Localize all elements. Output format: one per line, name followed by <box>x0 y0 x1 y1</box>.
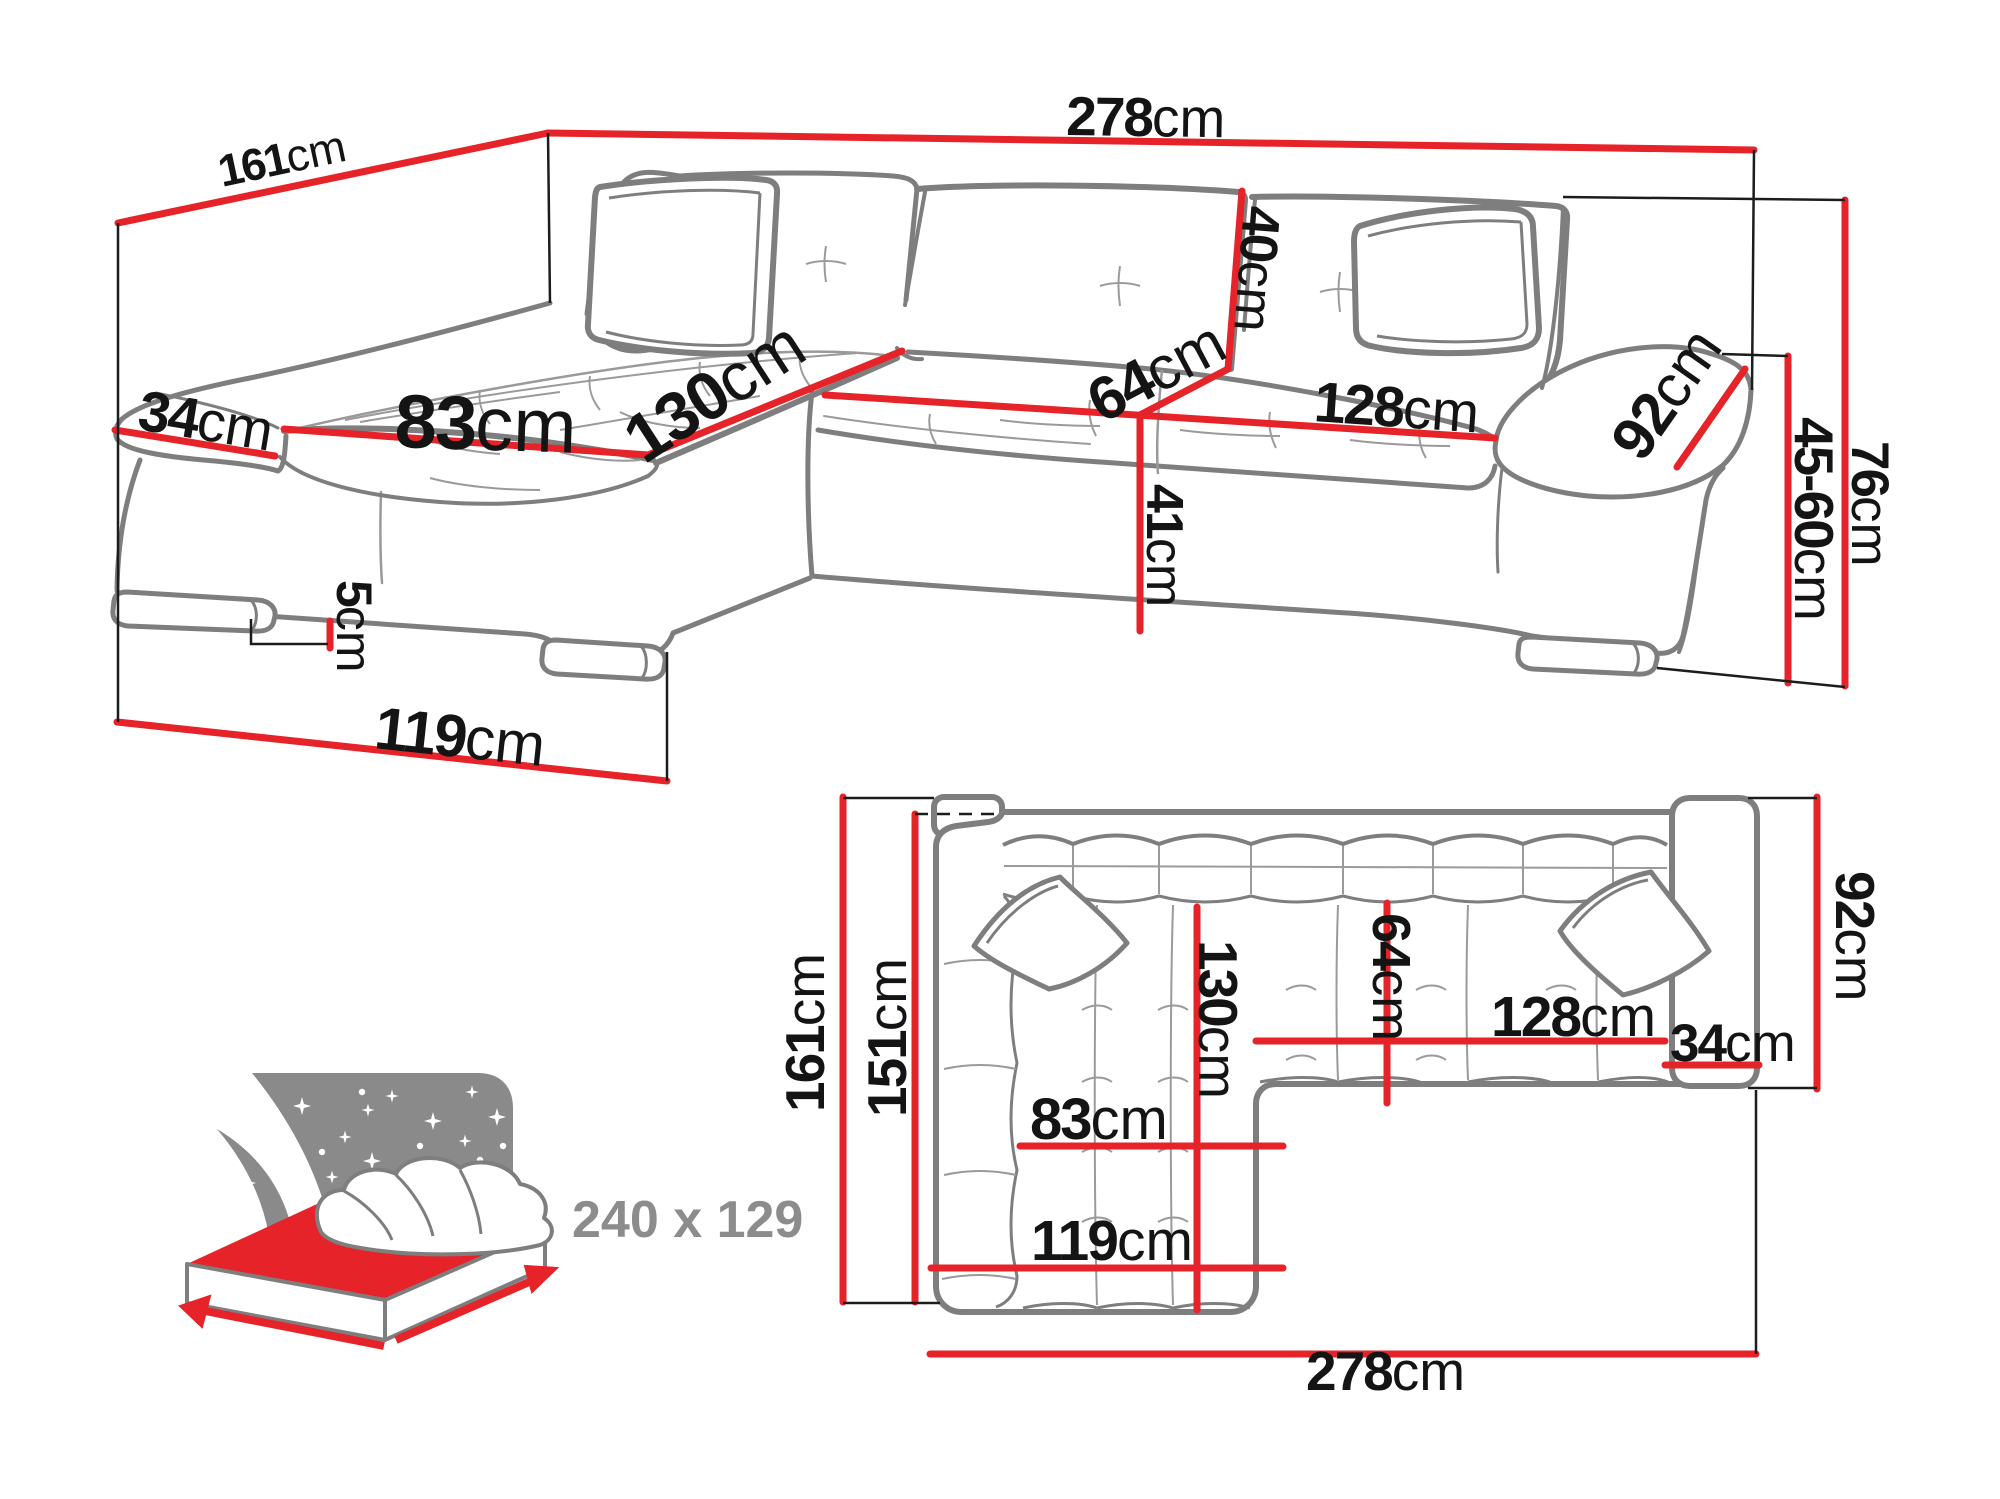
svg-text:128cm: 128cm <box>1312 370 1481 445</box>
svg-text:278cm: 278cm <box>1066 85 1226 149</box>
svg-text:83cm: 83cm <box>1030 1087 1168 1152</box>
svg-text:40cm: 40cm <box>1222 204 1291 334</box>
svg-text:5cm: 5cm <box>326 580 382 672</box>
svg-text:41cm: 41cm <box>1135 484 1193 607</box>
svg-text:130cm: 130cm <box>1187 940 1249 1099</box>
svg-text:76cm: 76cm <box>1840 441 1899 567</box>
svg-text:34cm: 34cm <box>1670 1014 1796 1073</box>
svg-text:151cm: 151cm <box>856 958 918 1117</box>
svg-text:240 x 129: 240 x 129 <box>572 1191 803 1249</box>
svg-text:64cm: 64cm <box>1361 913 1421 1041</box>
svg-text:128cm: 128cm <box>1491 985 1656 1049</box>
svg-text:119cm: 119cm <box>1031 1209 1193 1273</box>
svg-text:45-60cm: 45-60cm <box>1783 417 1845 621</box>
svg-text:278cm: 278cm <box>1306 1340 1465 1402</box>
svg-text:161cm: 161cm <box>774 953 836 1112</box>
svg-text:92cm: 92cm <box>1824 871 1886 1002</box>
svg-text:83cm: 83cm <box>393 379 577 470</box>
